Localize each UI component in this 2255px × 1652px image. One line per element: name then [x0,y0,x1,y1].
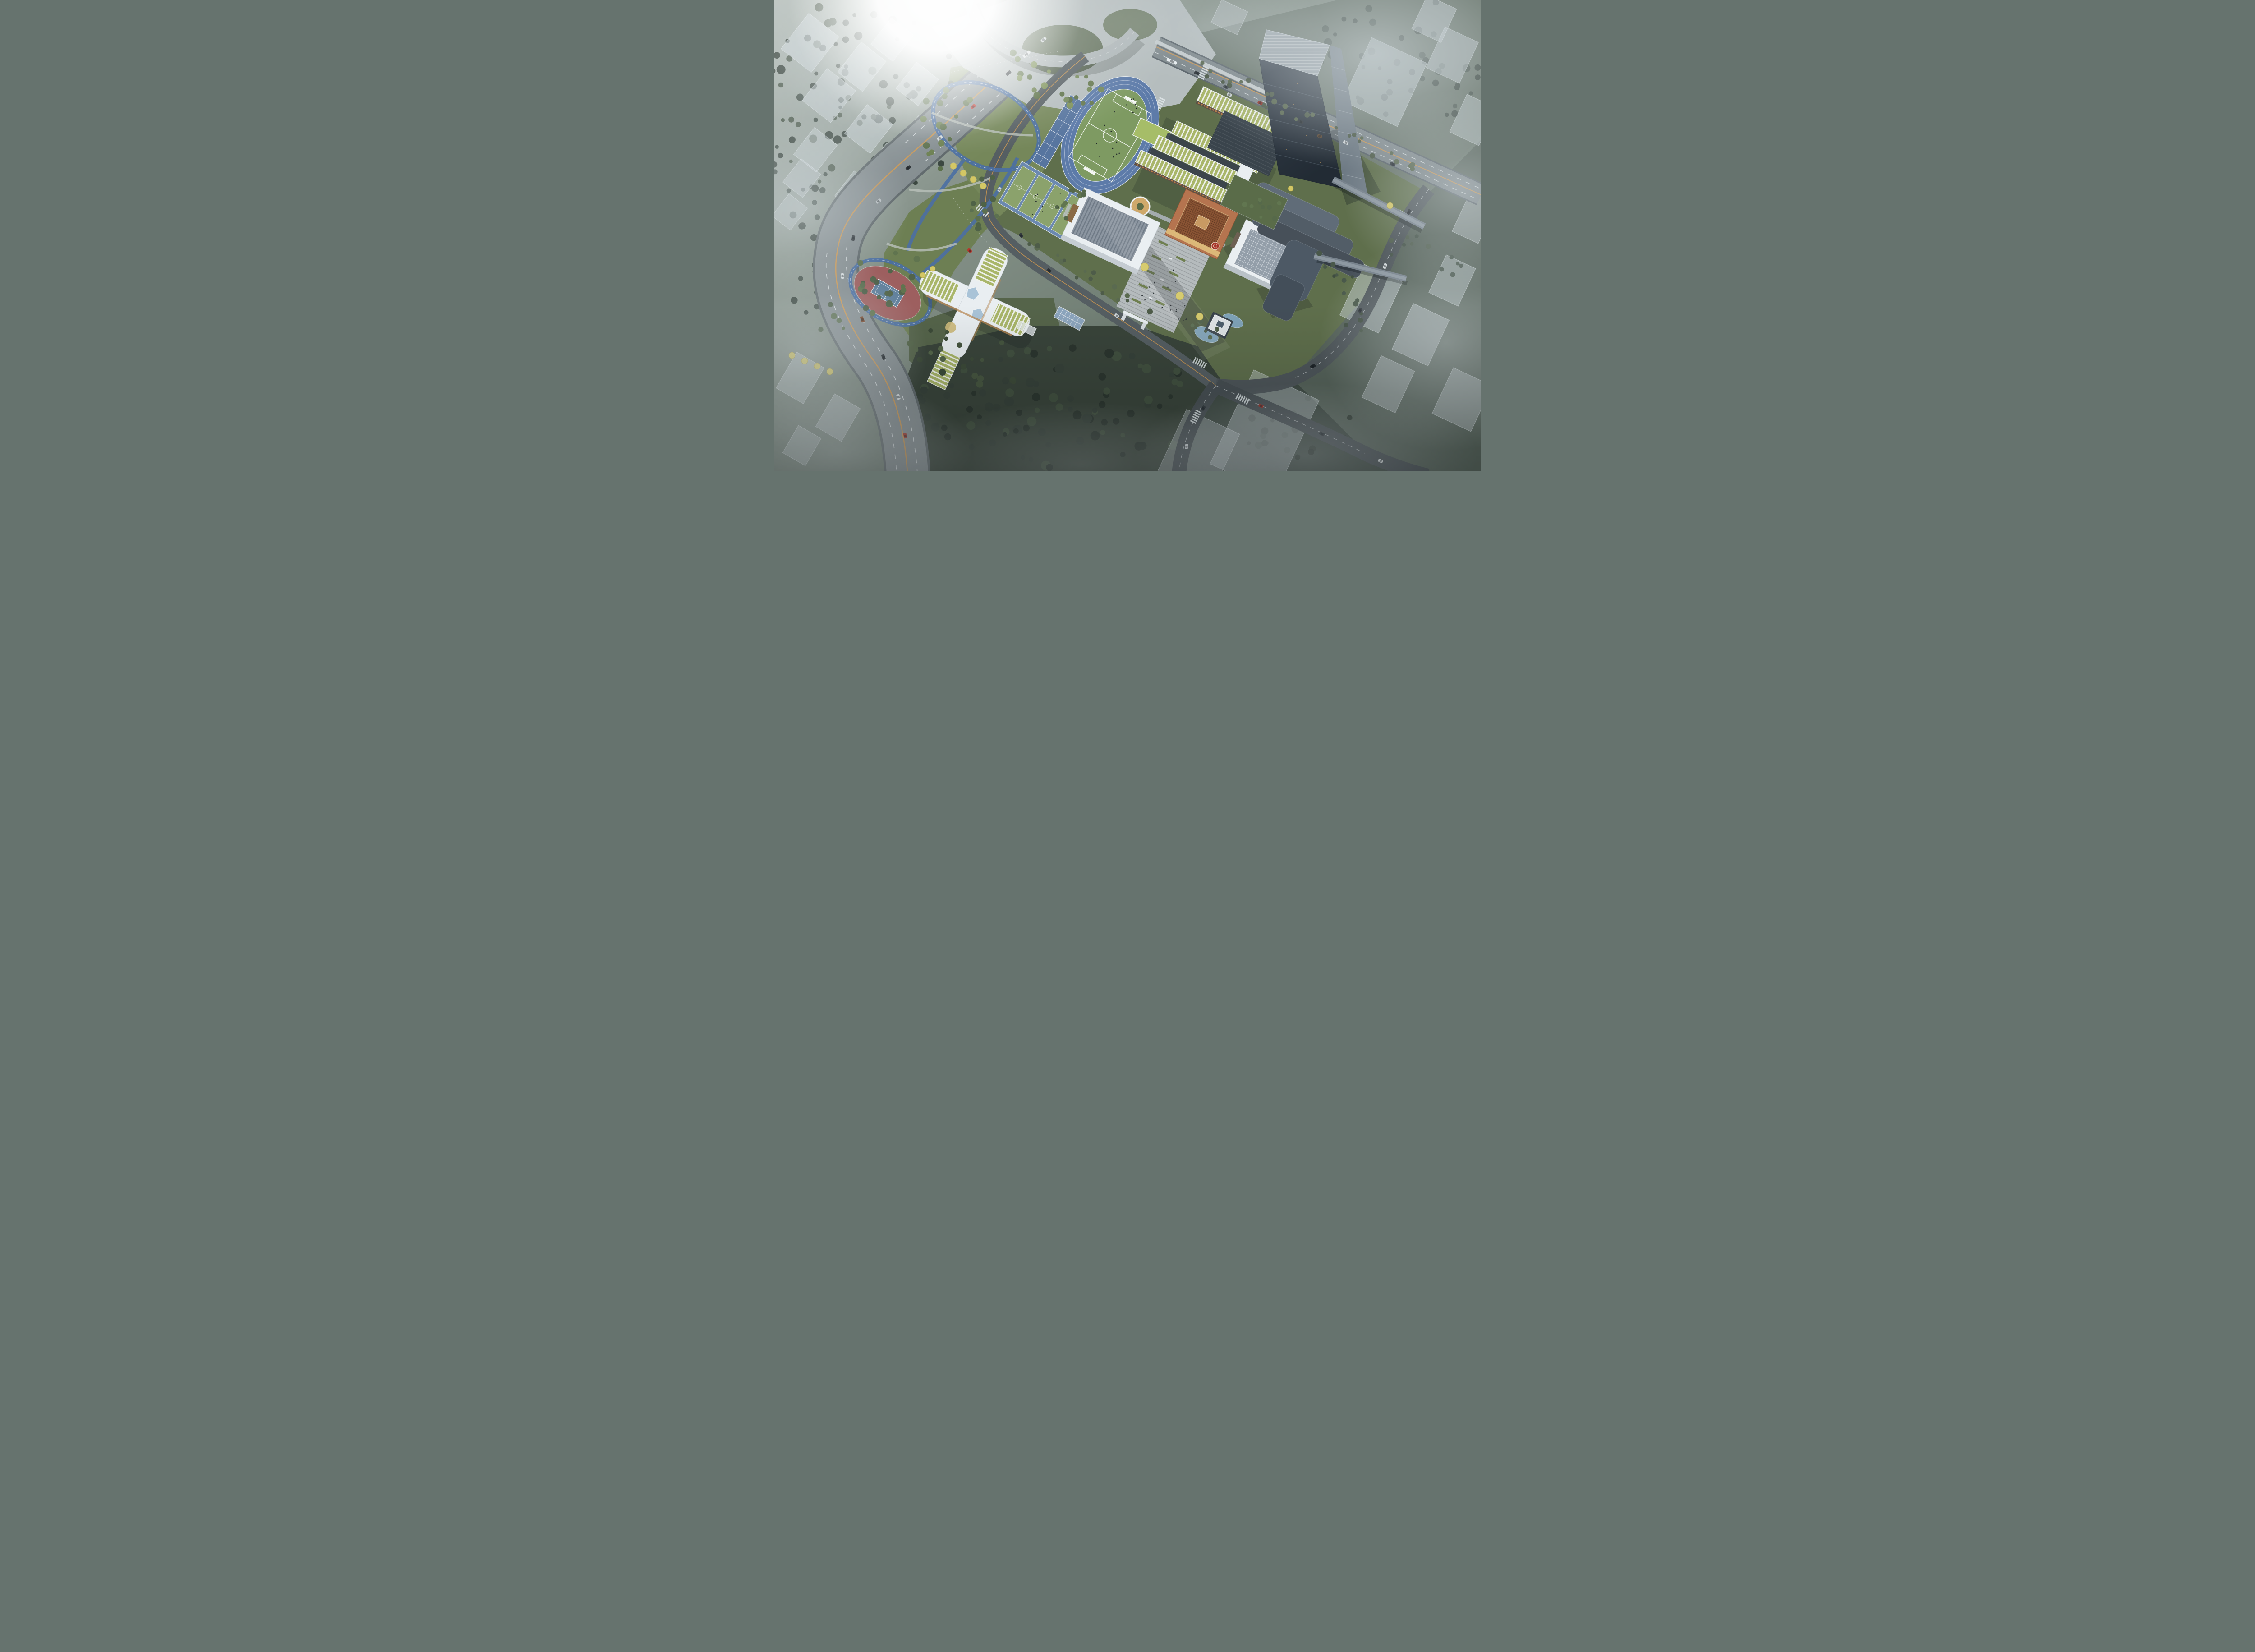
scene-canvas [774,0,1481,471]
aerial-campus-rendering [774,0,1481,471]
atmosphere [774,0,1481,471]
vignette [774,0,1481,471]
